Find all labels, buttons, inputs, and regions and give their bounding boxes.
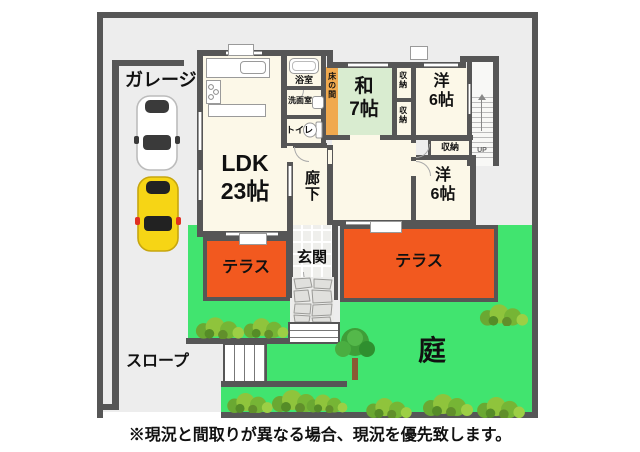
entrance-label: 玄関 [291,249,333,267]
stove-burners-icon [207,82,220,102]
stair-arrow-line [481,99,482,131]
bush [474,397,528,418]
bush [242,317,290,339]
window [424,63,458,67]
terrace-step [370,221,402,233]
window [348,63,388,67]
western-room-top-label: 洋 6帖 [414,72,469,110]
window [288,166,292,196]
bush [194,317,246,339]
bush [478,304,530,326]
floorplan-canvas: ガレージ LDK 23帖 和 7帖 洋 6帖 洋 6帖 浴室 洗面室 トイレ 床… [0,0,640,452]
closet-upper-label: 収納 [398,71,408,89]
caption: ※現況と間取りが異なる場合、現況を優先致します。 [0,426,640,445]
terrace-left-label: テラス [206,258,286,277]
hallway-label: 廊下 [302,170,320,202]
washroom-label: 洗面室 [284,96,316,106]
window [198,112,202,150]
kitchen-sink [240,61,266,74]
tree [334,326,376,382]
slope-label: スロープ [126,352,189,371]
western-room-bottom-size: 6帖 [414,185,472,204]
western-room-top-name: 洋 [414,72,469,91]
terrace-step [239,233,267,245]
bay-window [228,44,254,56]
japanese-room-label: 和 7帖 [336,76,392,122]
room-inner-hall [332,140,411,220]
wall-segment [97,12,538,18]
bay-window [410,46,428,60]
garden-steps [288,322,340,344]
wall-segment [197,50,332,56]
terrace-right-label: テラス [380,252,458,271]
wall-segment [287,115,321,119]
ldk-label: LDK 23帖 [202,150,288,205]
ldk-name: LDK [202,150,288,178]
garden-label: 庭 [418,334,446,368]
ldk-size: 23帖 [202,178,288,206]
closet-lower-label: 収納 [398,106,408,124]
wall-segment [112,60,184,66]
western-room-top-size: 6帖 [414,91,469,110]
closet-middle-label: 収納 [428,142,472,153]
bush [305,394,349,413]
stairs-up-label: UP [470,147,494,155]
japanese-room-name: 和 [336,76,392,99]
tokonoma-label: 床の間 [327,72,337,99]
garage-label: ガレージ [125,70,197,92]
wall-segment [532,12,538,418]
wall-segment [112,60,119,410]
western-room-bottom-name: 洋 [414,166,472,185]
door-opening [350,135,380,140]
bush [364,398,414,418]
yellow-car [135,176,181,252]
slope-steps [223,343,267,383]
wall-segment [103,404,119,410]
bush [420,394,476,416]
japanese-room-size: 7帖 [336,99,392,122]
toilet-label: トイレ [286,125,313,136]
white-car [134,95,180,171]
western-room-bottom-label: 洋 6帖 [414,166,472,204]
bush [225,393,275,413]
door-opening [328,150,332,164]
wall-segment [392,62,397,140]
wall-segment [97,12,103,418]
bath-label: 浴室 [287,75,321,86]
bathtub-inner [292,61,316,71]
stone-path [292,277,334,323]
kitchen-island [208,104,266,117]
stair-arrow-head [478,94,486,100]
